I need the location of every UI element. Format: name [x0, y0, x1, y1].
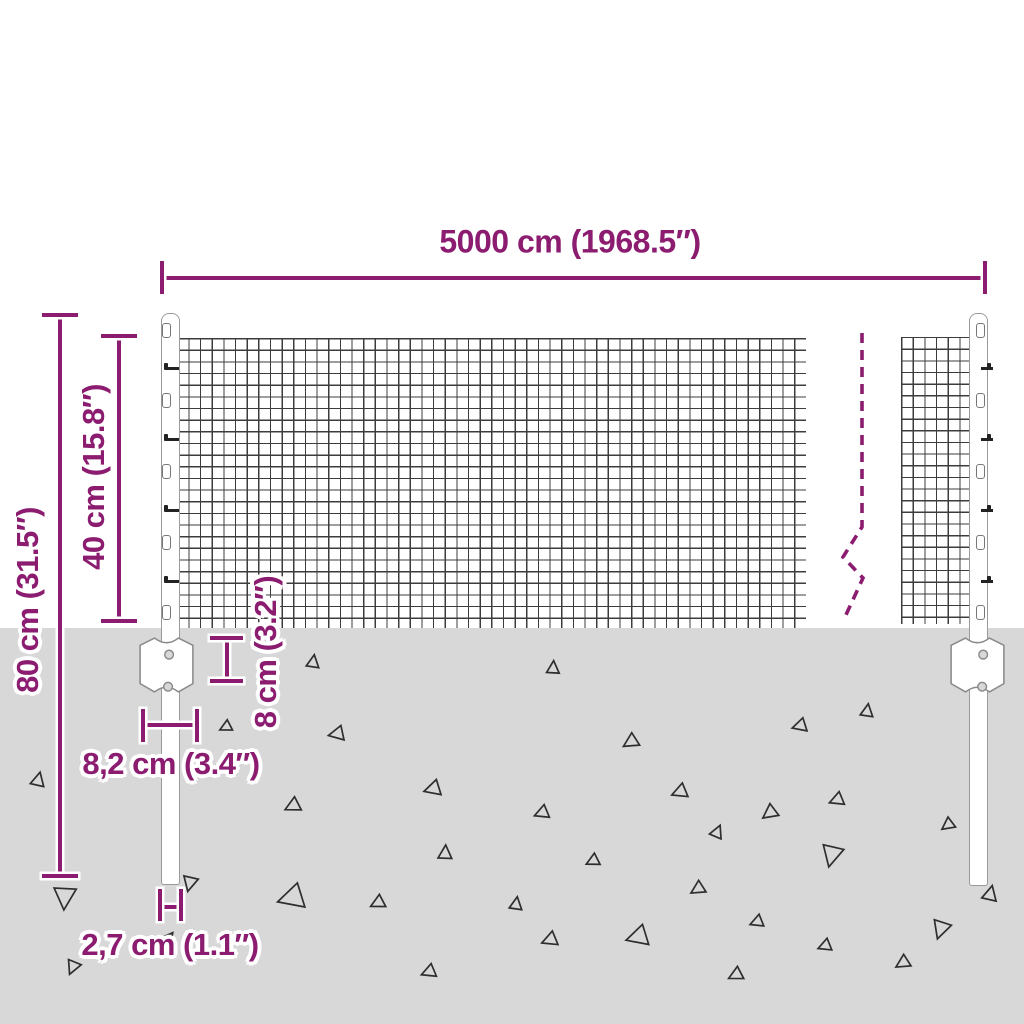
mesh-hook: [162, 605, 171, 620]
mesh-hook: [162, 323, 171, 338]
mesh-hook: [976, 605, 985, 620]
dim-anchor-width-line: [142, 723, 199, 727]
mesh-clamp-nub: [987, 576, 991, 583]
debris-triangle: [623, 924, 649, 950]
debris-triangle: [860, 703, 875, 717]
anchor-plate: [951, 638, 1004, 692]
debris-triangle: [982, 884, 1000, 902]
dim-anchor-width-tick-left: [141, 709, 145, 742]
debris-triangle: [306, 654, 321, 668]
dim-post-width-label: 2,7 cm (1.1″): [81, 927, 258, 963]
dim-post-height-tick-bottom: [42, 874, 78, 878]
debris-triangle: [438, 844, 453, 859]
dim-mesh-height-line: [117, 336, 121, 622]
mesh-hook: [162, 464, 171, 479]
debris-triangle: [539, 931, 558, 950]
length-break-indicator: [835, 328, 880, 628]
mesh-clamp-nub: [164, 434, 168, 441]
mesh-clamp-nub: [164, 505, 168, 512]
debris-triangle: [63, 959, 81, 977]
debris-triangle: [217, 720, 232, 735]
break-zigzag-line: [843, 333, 863, 617]
anchor-hole: [979, 650, 988, 659]
mesh-hook: [976, 464, 985, 479]
mesh-clamp: [167, 580, 179, 583]
mesh-hook: [976, 393, 985, 408]
debris-triangle: [929, 919, 952, 942]
dim-post-width-tick-left: [158, 889, 162, 921]
mesh-hook: [162, 393, 171, 408]
anchor-hole: [978, 682, 987, 691]
debris-triangle: [532, 804, 549, 822]
debris-triangle: [282, 797, 301, 816]
debris-triangle: [422, 779, 441, 798]
anchor-hole: [165, 650, 174, 659]
debris-triangle: [758, 803, 778, 823]
debris-triangle: [509, 896, 524, 910]
dim-anchor-depth-tick-top: [210, 636, 243, 640]
dim-mesh-height-tick-top: [101, 334, 137, 338]
dim-post-height-label: 80 cm (31.5″): [10, 507, 46, 693]
mesh-clamp-nub: [987, 505, 991, 512]
dim-mesh-height-tick-bottom: [101, 619, 137, 623]
mesh-hook: [976, 535, 985, 550]
debris-triangle: [327, 725, 344, 742]
mesh-clamp-nub: [987, 434, 991, 441]
mesh-clamp-nub: [164, 576, 168, 583]
debris-triangle: [726, 966, 744, 984]
debris-triangle: [180, 875, 198, 893]
debris-triangle: [584, 853, 601, 870]
debris-triangle: [938, 817, 955, 834]
dim-anchor-width-tick-right: [195, 709, 199, 742]
debris-triangle: [827, 791, 844, 809]
dim-anchor-depth-label: 8 cm (3.2″): [248, 576, 284, 728]
ground-anchor-left: [138, 636, 195, 695]
mesh-clamp-nub: [164, 363, 168, 370]
dim-mesh-height-label: 40 cm (15.8″): [76, 384, 112, 570]
dim-post-width-tick-right: [179, 889, 183, 921]
debris-triangle: [274, 883, 305, 914]
dim-anchor-depth-line: [225, 638, 229, 682]
debris-triangle: [620, 732, 640, 752]
debris-triangle: [368, 894, 386, 912]
ground-anchor-right: [949, 636, 1006, 695]
debris-triangle: [419, 963, 436, 981]
debris-triangle: [669, 783, 688, 802]
mesh-clamp: [167, 509, 179, 512]
anchor-hole: [164, 682, 173, 691]
dim-total-width-tick-left: [160, 261, 164, 294]
mesh-clamp: [167, 438, 179, 441]
debris-triangle: [892, 954, 911, 973]
debris-triangle: [748, 914, 764, 930]
fence-dimension-diagram: 5000 cm (1968.5″) 80 cm (31.5″) 40 cm (1…: [0, 0, 1024, 1024]
mesh-clamp-nub: [987, 363, 991, 370]
debris-triangle: [30, 770, 47, 787]
dim-anchor-depth-tick-bottom: [210, 679, 243, 683]
debris-triangle: [687, 880, 706, 899]
debris-triangle: [52, 887, 76, 911]
dim-post-height-tick-top: [42, 313, 78, 317]
debris-triangle: [816, 938, 832, 954]
debris-triangle: [547, 660, 561, 673]
dim-post-height-line: [58, 315, 62, 877]
dim-total-width-label: 5000 cm (1968.5″): [439, 224, 700, 261]
mesh-clamp: [167, 367, 179, 370]
mesh-hook: [162, 535, 171, 550]
mesh-hook: [976, 323, 985, 338]
dim-total-width-line: [163, 276, 985, 280]
dim-total-width-tick-right: [983, 261, 987, 294]
debris-triangle: [790, 718, 807, 735]
dim-anchor-width-label: 8,2 cm (3.4″): [82, 746, 259, 782]
debris-triangle: [709, 823, 726, 840]
debris-triangle: [818, 844, 844, 870]
